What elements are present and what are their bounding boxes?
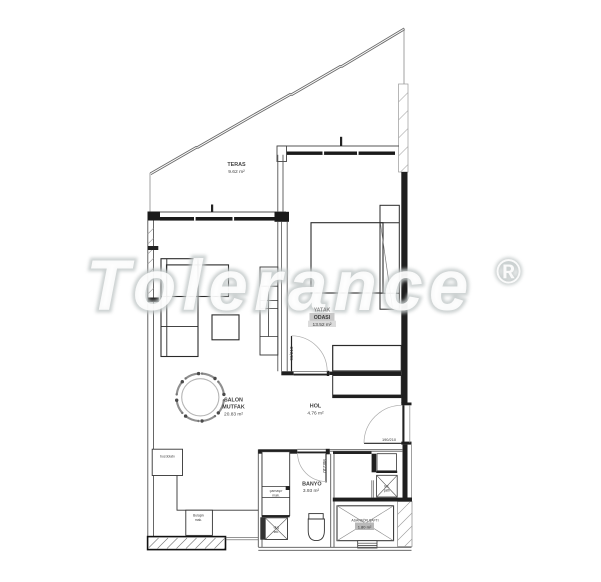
svg-text:ASANSÖR ŞAFTI: ASANSÖR ŞAFTI	[351, 519, 378, 523]
svg-text:YATAK: YATAK	[314, 308, 331, 314]
svg-text:190/210: 190/210	[382, 437, 397, 442]
svg-text:BANYO: BANYO	[302, 482, 321, 488]
svg-text:TERAS: TERAS	[227, 162, 246, 168]
svg-text:Bulaşık: Bulaşık	[193, 514, 204, 518]
svg-text:Tolerance: Tolerance	[86, 247, 475, 326]
svg-text:şaftı: şaftı	[384, 489, 390, 493]
svg-text:80/210: 80/210	[322, 459, 327, 473]
svg-text:90/210: 90/210	[289, 346, 294, 360]
svg-text:3.93 m²: 3.93 m²	[303, 488, 320, 494]
svg-text:13.52 m²: 13.52 m²	[313, 322, 332, 328]
svg-text:20.83 m²: 20.83 m²	[224, 411, 243, 417]
svg-text:HOL: HOL	[310, 404, 322, 410]
svg-text:mak.: mak.	[272, 493, 280, 497]
svg-text:ODASI: ODASI	[314, 315, 331, 321]
svg-text:1.80 m²: 1.80 m²	[358, 525, 372, 530]
svg-text:SALON: SALON	[224, 397, 243, 403]
svg-text:9.62 m²: 9.62 m²	[228, 169, 245, 175]
svg-text:tek.: tek.	[274, 530, 280, 534]
svg-text:mak.: mak.	[195, 518, 202, 522]
svg-text:buzdolabı: buzdolabı	[160, 455, 175, 459]
svg-text:MUTFAK: MUTFAK	[222, 405, 245, 411]
svg-text:®: ®	[496, 253, 521, 291]
svg-text:4.76 m²: 4.76 m²	[307, 410, 324, 416]
